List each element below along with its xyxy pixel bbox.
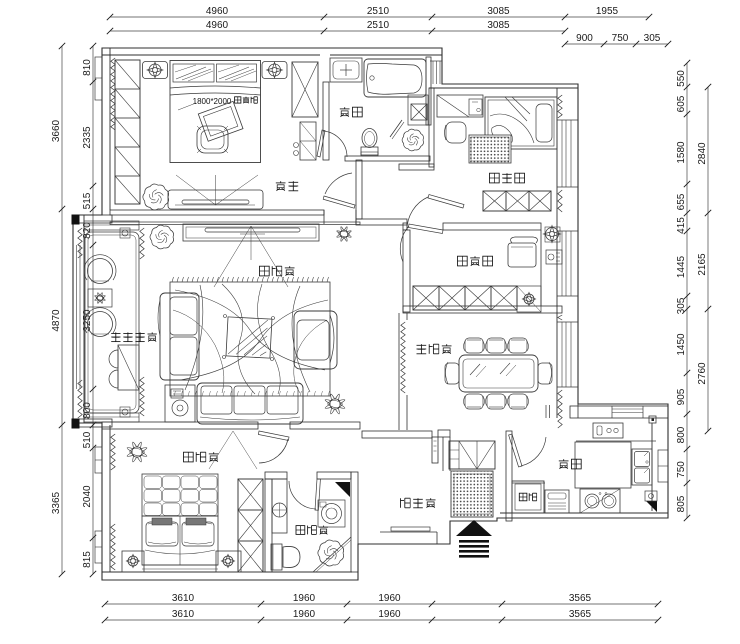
svg-text:800: 800 bbox=[676, 426, 687, 443]
svg-text:510: 510 bbox=[82, 431, 93, 448]
svg-text:2040: 2040 bbox=[82, 485, 93, 508]
svg-text:4960: 4960 bbox=[206, 20, 229, 31]
svg-text:1450: 1450 bbox=[676, 333, 687, 356]
svg-text:1580: 1580 bbox=[676, 141, 687, 164]
svg-text:2760: 2760 bbox=[697, 362, 708, 385]
svg-text:815: 815 bbox=[82, 551, 93, 568]
svg-text:750: 750 bbox=[676, 461, 687, 478]
svg-text:1960: 1960 bbox=[378, 609, 401, 620]
svg-text:1955: 1955 bbox=[596, 6, 619, 17]
svg-text:2335: 2335 bbox=[82, 126, 93, 149]
svg-text:3660: 3660 bbox=[51, 119, 62, 142]
svg-text:3610: 3610 bbox=[172, 593, 195, 604]
svg-text:1960: 1960 bbox=[378, 593, 401, 604]
svg-text:4870: 4870 bbox=[51, 309, 62, 332]
svg-text:3565: 3565 bbox=[569, 609, 592, 620]
svg-text:2165: 2165 bbox=[697, 253, 708, 276]
svg-text:3565: 3565 bbox=[569, 593, 592, 604]
svg-text:515: 515 bbox=[82, 192, 93, 209]
svg-text:1445: 1445 bbox=[676, 255, 687, 278]
svg-text:2840: 2840 bbox=[697, 142, 708, 165]
svg-text:655: 655 bbox=[676, 193, 687, 210]
svg-text:3085: 3085 bbox=[487, 20, 510, 31]
svg-text:605: 605 bbox=[676, 95, 687, 112]
svg-text:415: 415 bbox=[676, 217, 687, 234]
svg-text:305: 305 bbox=[644, 33, 661, 44]
svg-text:4960: 4960 bbox=[206, 6, 229, 17]
svg-text:3365: 3365 bbox=[51, 491, 62, 514]
svg-text:805: 805 bbox=[676, 495, 687, 512]
svg-text:1800*2000: 1800*2000 bbox=[193, 97, 232, 106]
svg-text:905: 905 bbox=[676, 388, 687, 405]
svg-text:3085: 3085 bbox=[487, 6, 510, 17]
svg-text:1960: 1960 bbox=[293, 609, 316, 620]
svg-text:3610: 3610 bbox=[172, 609, 195, 620]
svg-text:750: 750 bbox=[612, 33, 629, 44]
svg-text:900: 900 bbox=[576, 33, 593, 44]
svg-text:2510: 2510 bbox=[367, 6, 390, 17]
svg-text:1960: 1960 bbox=[293, 593, 316, 604]
svg-text:810: 810 bbox=[82, 59, 93, 76]
svg-text:550: 550 bbox=[676, 70, 687, 87]
svg-text:2510: 2510 bbox=[367, 20, 390, 31]
svg-text:305: 305 bbox=[676, 297, 687, 314]
